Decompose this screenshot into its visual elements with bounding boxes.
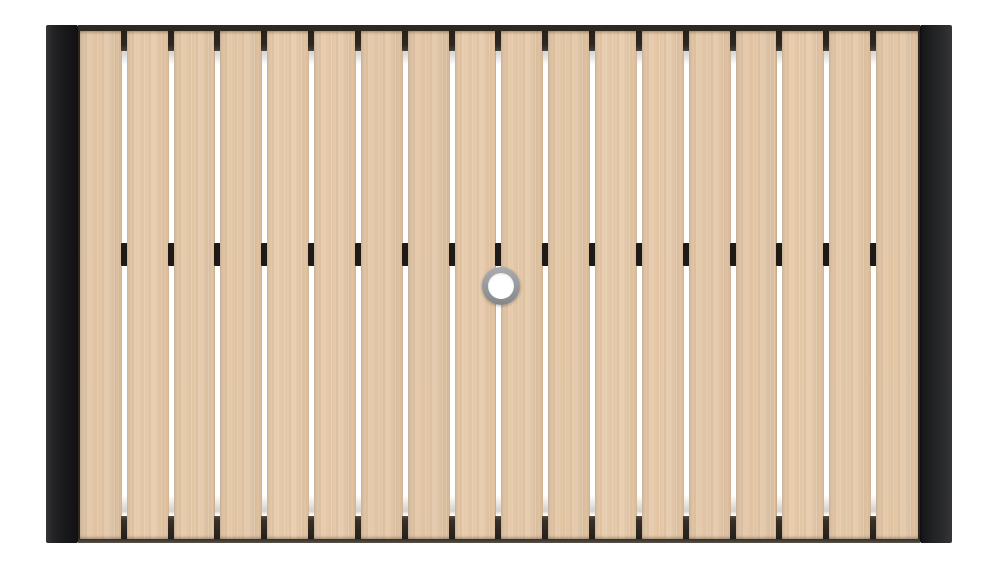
wood-slat [782, 31, 824, 539]
wood-slat [314, 31, 356, 539]
umbrella-hole-opening [488, 273, 514, 299]
right-end-cap [920, 25, 952, 543]
wood-slat [595, 31, 637, 539]
product-photo-canvas [0, 0, 1000, 571]
wood-slat [548, 31, 590, 539]
wood-slat [127, 31, 169, 539]
left-end-cap [46, 25, 78, 543]
umbrella-hole-ring [482, 267, 520, 305]
wood-slat [267, 31, 309, 539]
wood-slat [408, 31, 450, 539]
wood-slat [220, 31, 262, 539]
table-top [46, 25, 952, 543]
wood-slat [736, 31, 778, 539]
wood-slat [829, 31, 871, 539]
wood-slat [80, 31, 122, 539]
wood-slat [174, 31, 216, 539]
wood-slat [361, 31, 403, 539]
wood-slat [876, 31, 918, 539]
wood-slat [642, 31, 684, 539]
deck-bottom-edge [78, 539, 920, 543]
wood-slat [689, 31, 731, 539]
